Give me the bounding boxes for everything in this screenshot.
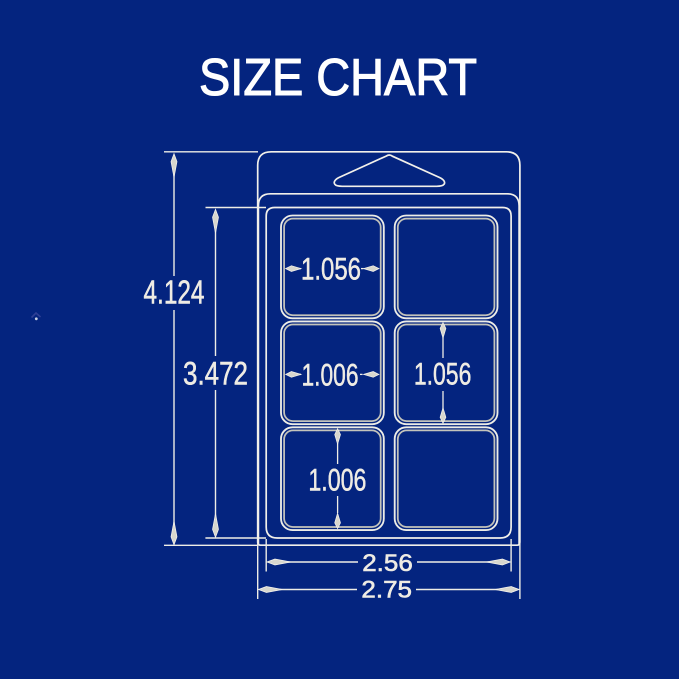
- svg-text:2.56: 2.56: [362, 550, 413, 577]
- svg-text:1.006: 1.006: [308, 462, 366, 498]
- svg-text:4.124: 4.124: [144, 273, 205, 310]
- svg-text:3.472: 3.472: [183, 355, 248, 391]
- svg-text:2.75: 2.75: [361, 577, 412, 604]
- svg-text:1.006: 1.006: [302, 356, 359, 392]
- svg-text:SIZE CHART: SIZE CHART: [199, 49, 477, 107]
- svg-text:1.056: 1.056: [414, 356, 472, 392]
- svg-text:1.056: 1.056: [301, 251, 361, 287]
